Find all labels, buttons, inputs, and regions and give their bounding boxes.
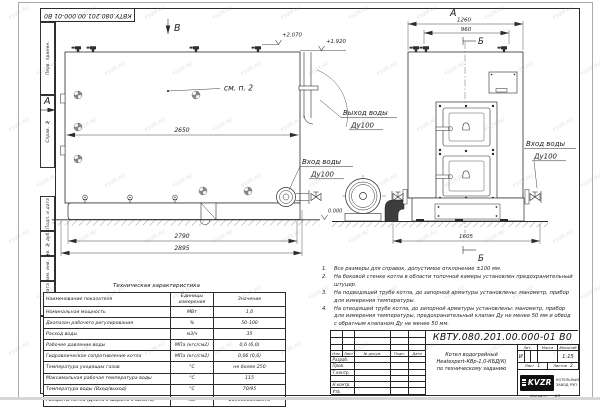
- valve-icon: [190, 46, 199, 52]
- section-b-bottom-label: Б: [478, 254, 484, 264]
- elevation-1920-label: +1.920: [326, 39, 347, 45]
- dim-960-label: 960: [461, 27, 472, 33]
- view-b-label: В: [174, 23, 181, 34]
- ground-hatch: [52, 220, 320, 225]
- valve-icon: [252, 46, 261, 52]
- datum-icon: [244, 187, 252, 195]
- datum-icon: [74, 91, 82, 99]
- outlet-pipe: [299, 51, 348, 128]
- inlet-water-right-label: Вход воды: [526, 140, 566, 148]
- elevation-0-label: 0.000: [328, 209, 342, 215]
- latch-icon: [463, 171, 469, 178]
- boiler-base: [68, 203, 300, 220]
- side-view: 2650 2790 2895 А В см. п. 2 +2.070 +1.92…: [40, 19, 348, 256]
- drawing-sheet: { "watermark": "KVZR.RU", "frame": { "to…: [0, 0, 600, 400]
- fan-pedestal: [345, 214, 381, 222]
- drawing-canvas: 2650 2790 2895 А В см. п. 2 +2.070 +1.92…: [0, 0, 600, 400]
- outlet-water-label: Выход воды: [343, 109, 388, 117]
- datum-icon: [192, 91, 200, 99]
- view-a-title: А: [449, 8, 457, 19]
- section-b-top-label: Б: [478, 37, 484, 47]
- outlet-dn-label: Ду100: [350, 122, 375, 130]
- dim-2895-label: 2895: [174, 245, 189, 252]
- front-view: 1260 960 А Б 1605 Б: [332, 8, 548, 264]
- ground-hatch: [332, 222, 548, 227]
- inlet-dn-left-label: Ду100: [310, 171, 335, 179]
- datum-icon: [74, 155, 82, 163]
- dim-1605-label: 1605: [459, 234, 473, 240]
- control-panel: [489, 72, 517, 93]
- inlet-dn-right-label: Ду100: [533, 153, 558, 161]
- furnace-doors: [436, 102, 497, 202]
- hinge-tab: [61, 146, 66, 155]
- see-note-label: см. п. 2: [224, 84, 253, 93]
- valve-icon: [420, 46, 429, 52]
- dim-1260-label: 1260: [457, 18, 471, 24]
- elevation-2070-label: +2.070: [282, 33, 303, 39]
- datum-icon: [199, 187, 207, 195]
- datum-icon: [74, 123, 82, 131]
- view-a-arrow-label: А: [43, 96, 51, 107]
- blower-fan: 0.000: [322, 175, 405, 222]
- dim-2650-label: 2650: [174, 127, 189, 134]
- dim-2790-label: 2790: [174, 233, 189, 240]
- valve-icon: [498, 46, 507, 52]
- duct-elbow: [385, 200, 404, 222]
- hinge-tab: [61, 94, 66, 103]
- latch-icon: [463, 123, 469, 130]
- front-plinth: [412, 198, 524, 222]
- valve-icon: [87, 46, 96, 52]
- valve-icon: [410, 46, 419, 52]
- valve-icon: [72, 46, 81, 52]
- inlet-water-left-label: Вход воды: [302, 158, 342, 166]
